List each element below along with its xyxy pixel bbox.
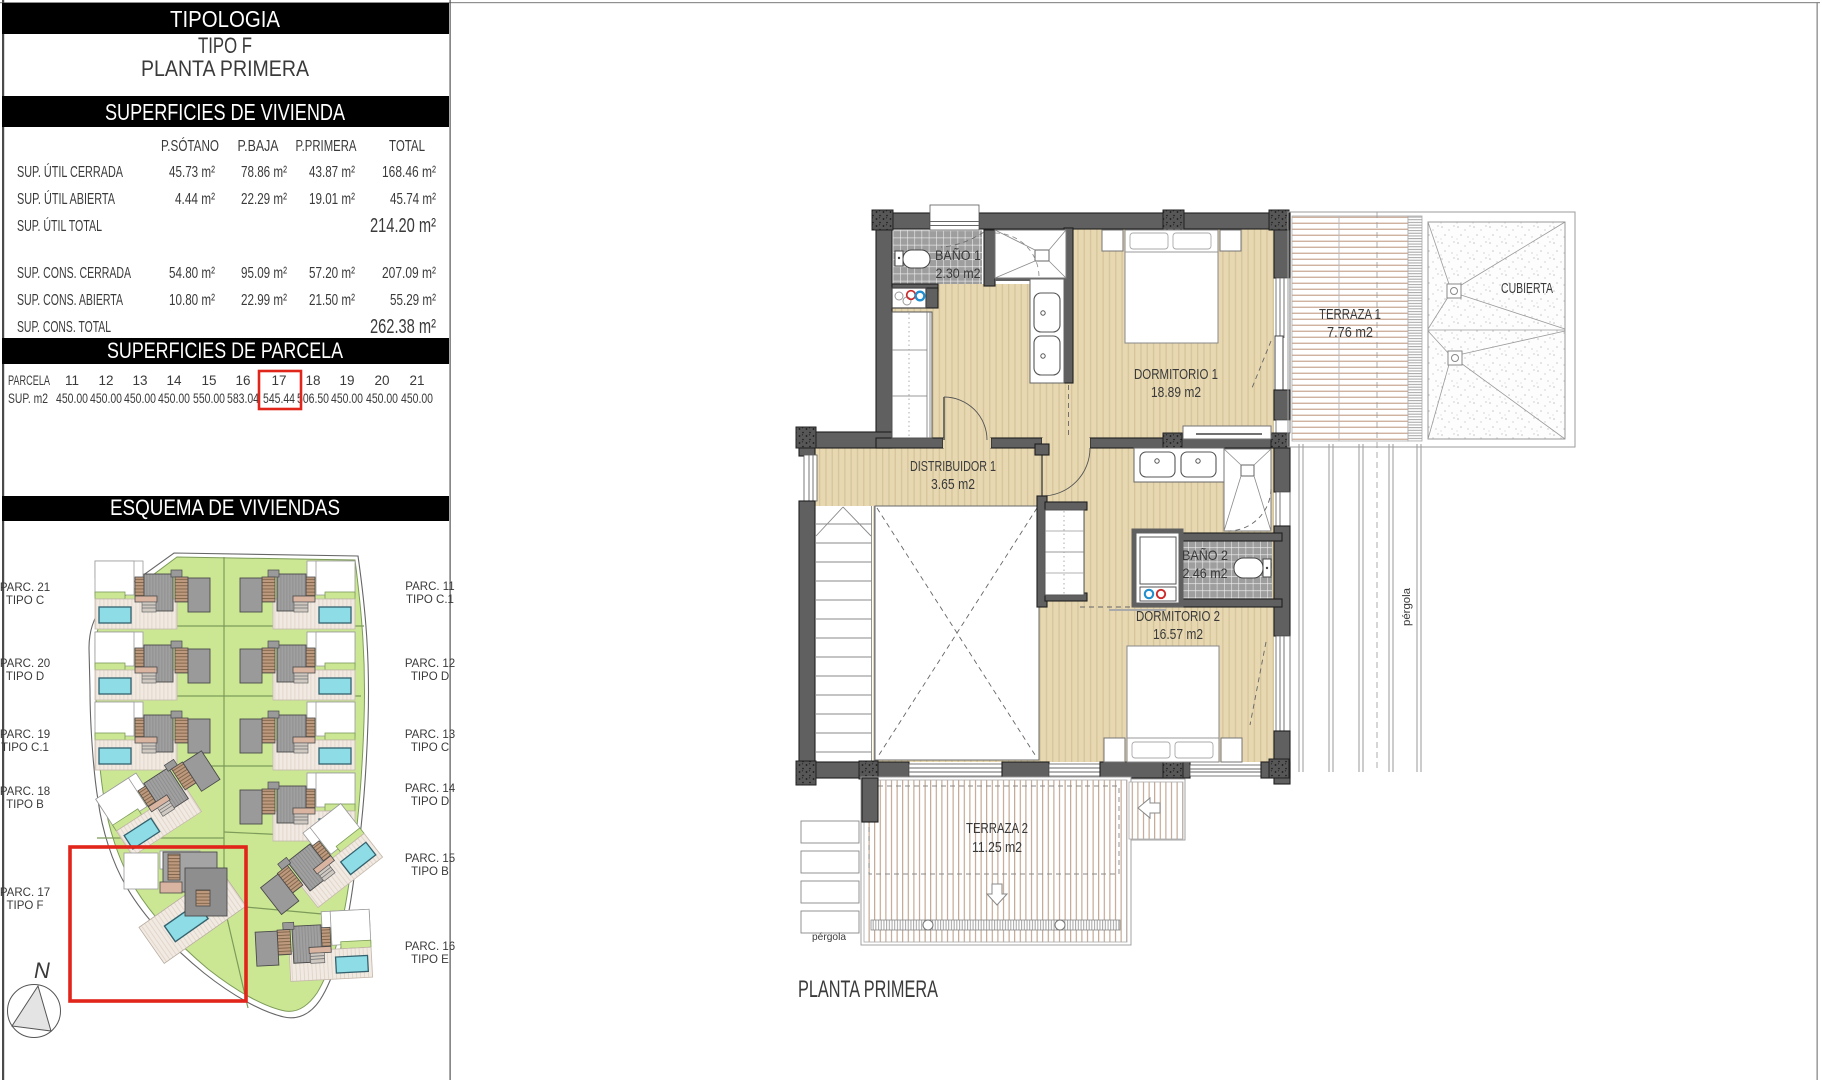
svg-text:12: 12: [98, 373, 113, 388]
svg-text:450.00: 450.00: [124, 391, 156, 406]
svg-text:45.74 m²: 45.74 m²: [390, 191, 436, 208]
svg-text:PARC. 11: PARC. 11: [405, 581, 454, 593]
svg-text:168.46 m²: 168.46 m²: [382, 164, 436, 181]
svg-text:4.44 m²: 4.44 m²: [175, 191, 215, 208]
svg-text:PARC. 14: PARC. 14: [405, 783, 456, 795]
svg-text:14: 14: [166, 373, 182, 388]
svg-text:3.65 m2: 3.65 m2: [931, 476, 975, 493]
svg-text:95.09 m²: 95.09 m²: [241, 265, 287, 282]
svg-text:TIPO D: TIPO D: [6, 671, 44, 683]
svg-text:SUP. CONS. TOTAL: SUP. CONS. TOTAL: [17, 319, 111, 336]
svg-text:SUP. ÚTIL TOTAL: SUP. ÚTIL TOTAL: [17, 216, 102, 235]
svg-text:pérgola: pérgola: [1401, 587, 1413, 626]
svg-text:19: 19: [339, 373, 354, 388]
svg-text:22.99 m²: 22.99 m²: [241, 292, 287, 309]
svg-text:TIPO D: TIPO D: [411, 796, 449, 808]
svg-text:15: 15: [201, 373, 216, 388]
svg-text:TOTAL: TOTAL: [389, 138, 425, 155]
svg-text:16.57 m2: 16.57 m2: [1153, 626, 1203, 643]
svg-text:TIPO C: TIPO C: [6, 595, 44, 607]
svg-text:11.25 m2: 11.25 m2: [972, 839, 1022, 856]
svg-text:pérgola: pérgola: [812, 931, 846, 943]
svg-text:TIPO F: TIPO F: [198, 33, 252, 58]
svg-text:P.SÓTANO: P.SÓTANO: [161, 136, 219, 155]
svg-text:P.PRIMERA: P.PRIMERA: [296, 138, 357, 155]
svg-text:PARC. 20: PARC. 20: [0, 658, 50, 670]
svg-text:2.30 m2: 2.30 m2: [936, 265, 981, 281]
svg-text:450.00: 450.00: [90, 391, 122, 406]
svg-text:55.29 m²: 55.29 m²: [390, 292, 436, 309]
svg-text:DORMITORIO 2: DORMITORIO 2: [1136, 608, 1220, 625]
svg-text:214.20 m²: 214.20 m²: [370, 215, 436, 237]
svg-text:583.04: 583.04: [227, 391, 259, 406]
svg-text:TIPO C.1: TIPO C.1: [1, 742, 49, 754]
svg-text:18.89 m2: 18.89 m2: [1151, 384, 1201, 401]
svg-text:17: 17: [271, 373, 286, 388]
svg-text:TIPOLOGIA: TIPOLOGIA: [170, 6, 281, 32]
svg-text:N: N: [34, 958, 50, 983]
svg-text:13: 13: [132, 373, 147, 388]
svg-text:PARC. 15: PARC. 15: [405, 853, 455, 865]
svg-text:207.09 m²: 207.09 m²: [382, 265, 436, 282]
svg-text:P.BAJA: P.BAJA: [238, 138, 279, 155]
svg-text:TERRAZA 2: TERRAZA 2: [966, 820, 1028, 837]
svg-text:TIPO D: TIPO D: [411, 671, 449, 683]
svg-text:PARC. 16: PARC. 16: [405, 941, 455, 953]
svg-text:PARCELA: PARCELA: [8, 373, 50, 388]
svg-text:550.00: 550.00: [193, 391, 225, 406]
svg-text:TIPO C: TIPO C: [411, 742, 449, 754]
svg-text:SUP. CONS. ABIERTA: SUP. CONS. ABIERTA: [17, 292, 123, 309]
svg-text:TIPO E: TIPO E: [411, 954, 449, 966]
svg-text:7.76 m2: 7.76 m2: [1327, 324, 1373, 341]
svg-text:450.00: 450.00: [401, 391, 433, 406]
svg-text:TERRAZA 1: TERRAZA 1: [1319, 306, 1381, 323]
svg-text:PARC. 17: PARC. 17: [0, 887, 50, 899]
svg-text:DORMITORIO 1: DORMITORIO 1: [1134, 366, 1218, 383]
svg-text:PLANTA PRIMERA: PLANTA PRIMERA: [141, 56, 309, 81]
svg-text:SUP. m2: SUP. m2: [8, 391, 48, 406]
svg-text:BAÑO 1: BAÑO 1: [935, 247, 981, 263]
svg-text:43.87 m²: 43.87 m²: [309, 164, 355, 181]
svg-text:19.01 m²: 19.01 m²: [309, 191, 355, 208]
svg-text:TIPO B: TIPO B: [411, 866, 449, 878]
svg-text:450.00: 450.00: [158, 391, 190, 406]
svg-text:TIPO B: TIPO B: [6, 799, 44, 811]
svg-text:10.80 m²: 10.80 m²: [169, 292, 215, 309]
svg-text:18: 18: [305, 373, 320, 388]
svg-text:SUPERFICIES DE VIVIENDA: SUPERFICIES DE VIVIENDA: [105, 99, 346, 125]
svg-text:BAÑO 2: BAÑO 2: [1182, 547, 1228, 563]
svg-text:PARC. 21: PARC. 21: [0, 582, 50, 594]
svg-text:PARC. 19: PARC. 19: [0, 729, 50, 741]
svg-text:SUP. CONS. CERRADA: SUP. CONS. CERRADA: [17, 265, 131, 282]
svg-text:450.00: 450.00: [56, 391, 88, 406]
svg-text:PARC. 12: PARC. 12: [405, 658, 455, 670]
svg-text:78.86 m²: 78.86 m²: [241, 164, 287, 181]
svg-text:TIPO C.1: TIPO C.1: [406, 594, 454, 606]
svg-text:16: 16: [235, 373, 250, 388]
svg-text:20: 20: [374, 373, 389, 388]
svg-text:57.20 m²: 57.20 m²: [309, 265, 355, 282]
svg-text:SUP. ÚTIL CERRADA: SUP. ÚTIL CERRADA: [17, 162, 123, 181]
svg-text:21: 21: [409, 373, 424, 388]
svg-text:SUP. ÚTIL ABIERTA: SUP. ÚTIL ABIERTA: [17, 189, 115, 208]
svg-text:262.38 m²: 262.38 m²: [370, 316, 436, 338]
svg-text:450.00: 450.00: [366, 391, 398, 406]
svg-text:SUPERFICIES DE PARCELA: SUPERFICIES DE PARCELA: [107, 338, 343, 363]
svg-text:CUBIERTA: CUBIERTA: [1501, 280, 1553, 297]
svg-text:22.29 m²: 22.29 m²: [241, 191, 287, 208]
svg-text:PARC. 13: PARC. 13: [405, 729, 455, 741]
svg-text:545.44: 545.44: [263, 391, 295, 406]
svg-text:11: 11: [65, 373, 79, 388]
svg-text:45.73 m²: 45.73 m²: [169, 164, 215, 181]
svg-text:54.80 m²: 54.80 m²: [169, 265, 215, 282]
svg-text:2.46 m2: 2.46 m2: [1183, 565, 1228, 581]
svg-text:PARC. 18: PARC. 18: [0, 786, 50, 798]
svg-text:DISTRIBUIDOR 1: DISTRIBUIDOR 1: [910, 458, 996, 475]
svg-text:21.50 m²: 21.50 m²: [309, 292, 355, 309]
svg-text:450.00: 450.00: [331, 391, 363, 406]
svg-text:PLANTA PRIMERA: PLANTA PRIMERA: [798, 976, 938, 1003]
svg-text:ESQUEMA DE VIVIENDAS: ESQUEMA DE VIVIENDAS: [110, 495, 340, 520]
svg-text:TIPO F: TIPO F: [6, 900, 43, 912]
